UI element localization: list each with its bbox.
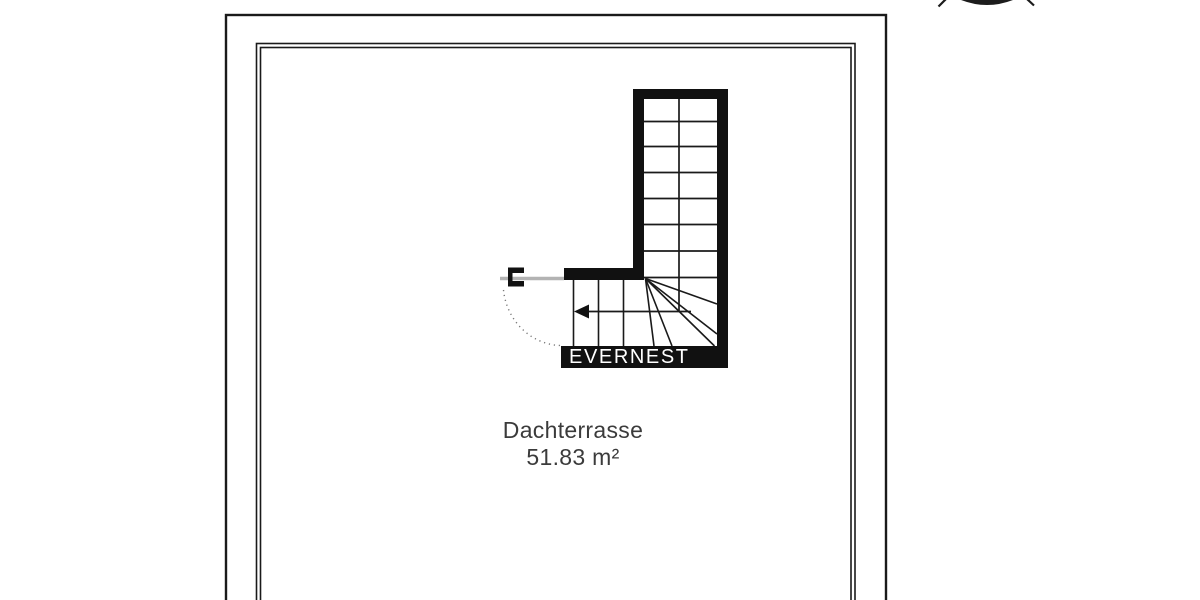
room-area: 51.83 m² <box>412 444 734 471</box>
staircase <box>561 89 728 368</box>
terrace-wall-double-line <box>257 44 856 600</box>
outer-border <box>226 15 886 600</box>
stair-treads <box>644 122 717 278</box>
terrace-door <box>500 268 564 346</box>
room-label: Dachterrasse 51.83 m² <box>412 417 734 471</box>
direction-arrow-icon <box>574 305 589 319</box>
compass-fragment-icon <box>939 0 1035 7</box>
floorplan-canvas: Dachterrasse 51.83 m² EVERNEST <box>0 0 1200 600</box>
room-name: Dachterrasse <box>412 417 734 444</box>
floorplan-drawing <box>0 0 1200 600</box>
walk-line <box>574 99 691 319</box>
door-swing-arc <box>504 290 562 346</box>
watermark-label: EVERNEST <box>569 347 690 368</box>
